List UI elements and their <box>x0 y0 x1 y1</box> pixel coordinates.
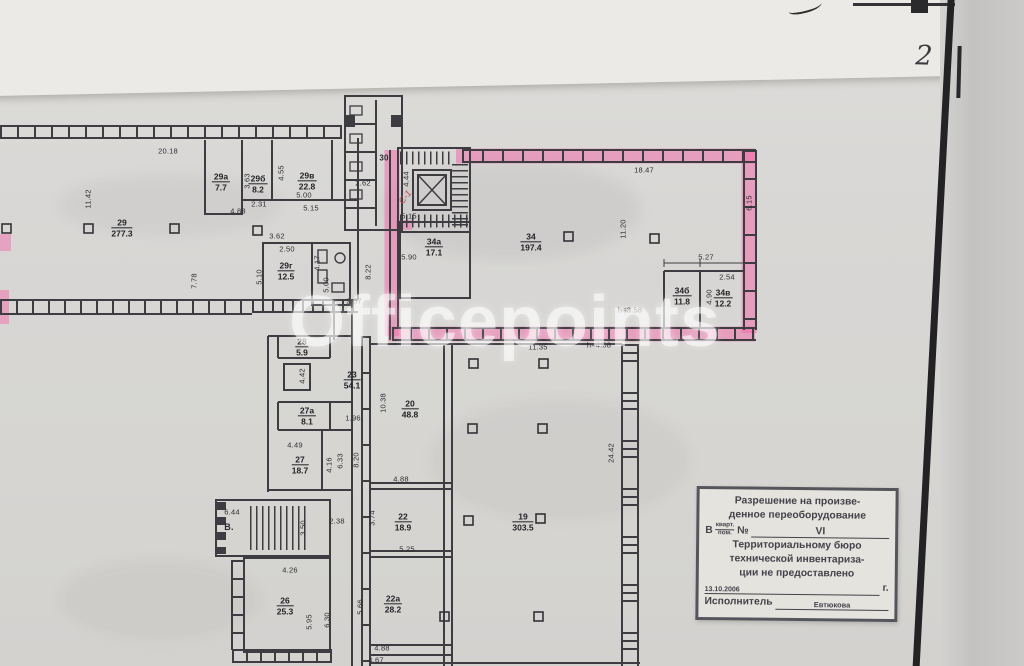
room-label: 2218.9 <box>395 511 412 532</box>
watermark: Officepoints <box>289 281 721 363</box>
room-number: 34 <box>520 231 541 242</box>
staircase-label: В. <box>224 522 233 532</box>
room-label: 34а17.1 <box>425 236 443 257</box>
dim-label: 6.15 <box>745 195 754 210</box>
dim-label: 4.26 <box>282 566 297 575</box>
stamp-year-suffix: г. <box>882 582 888 596</box>
room-area: 8.1 <box>298 417 316 427</box>
room-area: 28.2 <box>384 605 402 615</box>
dim-label: 5.10 <box>255 269 264 284</box>
scanned-floorplan-page: 20.18 11.42 7.78 3.63 2.31 4.83 4.55 5.0… <box>0 0 1024 666</box>
dim-label: 4.55 <box>277 165 286 180</box>
scan-artifact-square <box>911 0 928 13</box>
stamp-number-sign: № <box>737 524 749 538</box>
dim-label: 5.95 <box>305 614 314 629</box>
dim-label: 2.54 <box>719 273 734 282</box>
handwritten-unit-note: С-1 <box>397 188 414 206</box>
stamp-unit-line: VI <box>752 524 890 539</box>
dim-label: 24.42 <box>607 443 616 463</box>
stamp-body-line3: ции не предоставлено <box>705 566 889 582</box>
dim-label: 5.27 <box>698 253 713 262</box>
room-label: 2048.8 <box>402 398 419 419</box>
room-number: 23 <box>344 369 361 380</box>
stamp-date-line: 13.10.2006 <box>705 585 880 596</box>
room-label: 29277.3 <box>111 217 132 238</box>
room-number: 34а <box>425 236 443 247</box>
room-label: 29г12.5 <box>278 260 295 281</box>
dim-label: 4.49 <box>287 441 302 450</box>
room-area: 303.5 <box>512 523 533 533</box>
stamp-in-label: В <box>705 524 713 538</box>
room-label: 29б8.2 <box>249 173 268 194</box>
room-area: 18.9 <box>395 523 412 533</box>
dim-label: 2.50 <box>279 245 294 254</box>
dim-label: 2.62 <box>355 179 370 188</box>
stamp-unit-value: VI <box>752 524 890 539</box>
room-label: 2625.3 <box>277 595 294 616</box>
dim-label: 6.33 <box>336 453 345 468</box>
room-label: 29а7.7 <box>212 171 230 192</box>
dim-label: 3.74 <box>368 510 377 525</box>
dim-label: 8.22 <box>364 264 373 279</box>
dim-label: 4.42 <box>298 368 307 383</box>
room-label: 19303.5 <box>512 511 533 532</box>
dim-label: 5.15 <box>303 204 318 213</box>
room-area: 8.2 <box>249 185 268 195</box>
room-area: 22.8 <box>298 182 317 192</box>
stamp-executor-line: Евтюкова <box>776 599 889 610</box>
dim-label: 4.88 <box>393 475 408 484</box>
dim-label: 18.47 <box>634 166 654 175</box>
room-area: 7.7 <box>212 183 230 193</box>
room-area: 197.4 <box>520 243 541 253</box>
room-number: 29б <box>249 173 268 184</box>
room-number: 19 <box>512 511 533 522</box>
dim-label: 5.00 <box>296 191 311 200</box>
room-number: 22а <box>384 593 402 604</box>
dim-label: 6.44 <box>224 508 239 517</box>
dim-label: 11.20 <box>619 219 628 238</box>
dim-label: 5.90 <box>401 253 416 262</box>
room-number: 29в <box>298 170 317 181</box>
dim-label: 3.50 <box>299 520 308 535</box>
room-area: 48.8 <box>402 410 419 420</box>
room-area: 18.7 <box>292 466 309 476</box>
dim-label: 4.16 <box>325 457 334 472</box>
room-number: 20 <box>402 398 419 409</box>
room-label: 34197.4 <box>520 231 541 252</box>
stamp-date: 13.10.2006 <box>705 585 880 596</box>
dim-label: 6.30 <box>323 612 332 627</box>
room-number: 29г <box>278 260 295 271</box>
stamp-executor-row: Исполнитель Евтюкова <box>704 595 888 611</box>
dim-label: 2.31 <box>251 200 266 209</box>
room-number: 26 <box>277 595 294 606</box>
dim-label: 4.83 <box>230 207 245 216</box>
permission-stamp: Разрешение на произве- денное переоборуд… <box>695 486 898 622</box>
dim-label: 7.78 <box>190 273 199 288</box>
room-number: 29 <box>111 217 132 228</box>
dim-label: 8.20 <box>352 452 361 467</box>
stamp-executor-label: Исполнитель <box>704 595 772 609</box>
stamp-date-row: 13.10.2006 г. <box>705 580 889 596</box>
stamp-executor-name: Евтюкова <box>776 599 889 610</box>
dim-label: 5.25 <box>399 545 414 554</box>
stamp-body-line2: технической инвентариза- <box>705 552 889 568</box>
room-area: 54.1 <box>344 381 361 391</box>
room-number: 27 <box>292 454 309 465</box>
room-area: 17.1 <box>425 248 443 258</box>
dim-label: 4.44 <box>402 171 411 186</box>
dim-label: 11.42 <box>84 189 93 208</box>
room-label: 2718.7 <box>292 454 309 475</box>
top-edge-line <box>853 3 955 6</box>
page-number: 2 <box>915 40 933 72</box>
dim-label: 4.17 <box>313 255 322 270</box>
room-label: 27а8.1 <box>298 405 316 426</box>
room-area: 25.3 <box>277 607 294 617</box>
dim-label: 5.66 <box>356 599 365 614</box>
wc-room-number: 30 <box>379 154 388 163</box>
room-number: 29а <box>212 171 230 182</box>
stamp-frac-bottom: пом. <box>716 529 735 537</box>
room-number: 27а <box>298 405 316 416</box>
dim-label: 10.38 <box>379 393 388 413</box>
stamp-fraction: кварт.пом. <box>716 523 735 538</box>
room-number: 22 <box>395 511 412 522</box>
stamp-unit-row: В кварт.пом. № VI <box>705 522 889 539</box>
room-label: 2354.1 <box>344 369 361 390</box>
room-area: 277.3 <box>111 229 132 239</box>
dim-label: 1.96 <box>345 414 360 423</box>
dim-label: 5.15 <box>401 212 416 221</box>
dim-label: 2.38 <box>329 517 344 526</box>
dim-label: 4.88 <box>374 644 389 653</box>
dim-label: 3.62 <box>269 232 284 241</box>
dim-label: 20.18 <box>158 147 178 156</box>
room-label: 22а28.2 <box>384 593 402 614</box>
dim-label: 4.67 <box>368 656 383 665</box>
room-label: 29в22.8 <box>298 170 317 191</box>
